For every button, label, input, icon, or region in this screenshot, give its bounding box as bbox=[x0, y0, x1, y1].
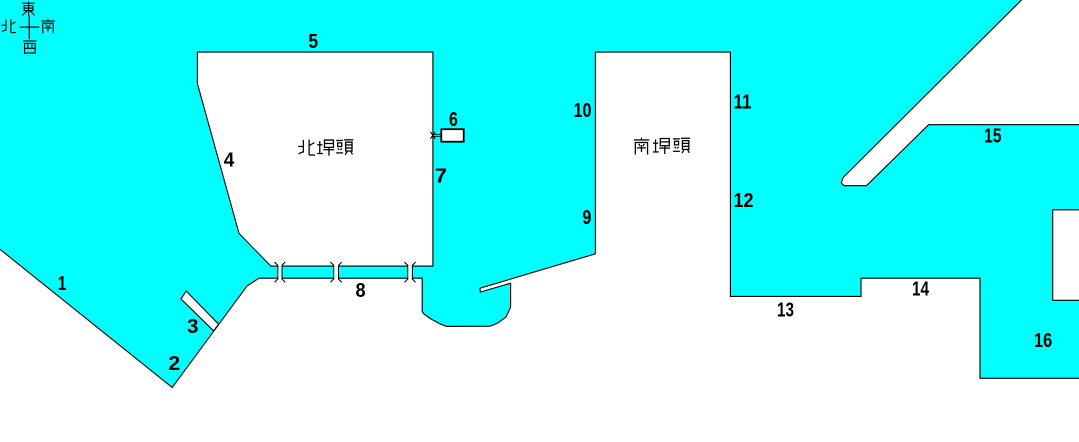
svg-text:6: 6 bbox=[449, 109, 458, 131]
svg-text:10: 10 bbox=[574, 100, 592, 122]
svg-text:4: 4 bbox=[224, 150, 235, 172]
svg-text:1: 1 bbox=[58, 273, 67, 295]
svg-text:5: 5 bbox=[308, 31, 318, 53]
svg-text:9: 9 bbox=[582, 207, 591, 229]
svg-text:14: 14 bbox=[912, 279, 930, 301]
svg-text:15: 15 bbox=[984, 125, 1002, 147]
svg-text:2: 2 bbox=[168, 353, 180, 375]
svg-text:16: 16 bbox=[1034, 330, 1052, 352]
svg-text:3: 3 bbox=[187, 316, 199, 338]
svg-text:13: 13 bbox=[777, 300, 794, 322]
svg-text:11: 11 bbox=[734, 92, 752, 114]
svg-text:7: 7 bbox=[435, 165, 447, 187]
svg-text:12: 12 bbox=[734, 190, 754, 212]
svg-text:8: 8 bbox=[356, 280, 366, 302]
